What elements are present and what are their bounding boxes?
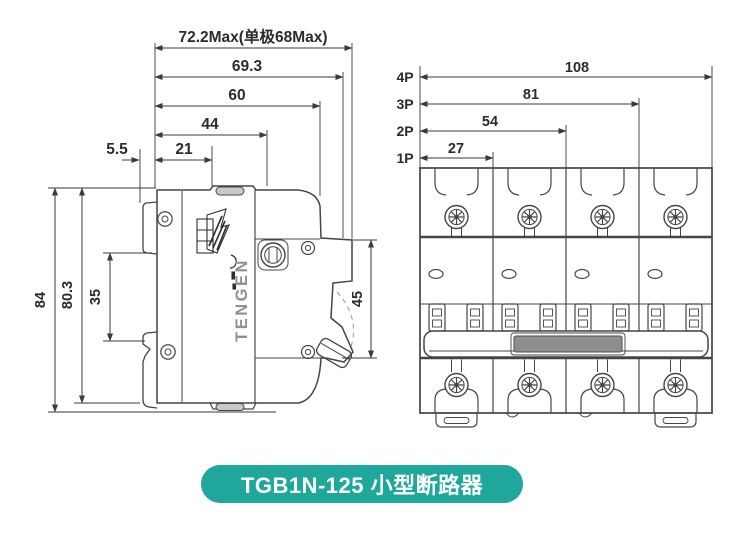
dim-108: 108 <box>565 60 589 76</box>
pole-label-1p: 1P <box>396 150 413 166</box>
certification-mark <box>197 209 236 289</box>
pole-1 <box>420 168 493 413</box>
pole-label-3p: 3P <box>396 96 413 112</box>
mounting-hole-icon <box>158 212 175 359</box>
product-dimension-sheet: TENGEN <box>0 0 750 555</box>
product-caption-badge: TGB1N-125 小型断路器 <box>201 465 523 503</box>
dim-5-5: 5.5 <box>106 141 128 158</box>
dim-45: 45 <box>350 291 366 307</box>
pole-2 <box>493 168 566 413</box>
pole-label-2p: 2P <box>396 123 413 139</box>
din-clip-upper <box>143 202 157 254</box>
dim-54: 54 <box>482 114 498 130</box>
side-view-drawing: TENGEN <box>143 186 354 411</box>
front-view-drawing <box>420 168 712 427</box>
terminal-screw-icon <box>258 240 288 270</box>
dim-80-3: 80.3 <box>60 281 76 309</box>
pole-label-4p: 4P <box>396 69 413 85</box>
dim-21: 21 <box>175 141 193 158</box>
din-clip-lower <box>143 332 157 408</box>
brand-text: TENGEN <box>233 258 251 342</box>
handle-bar <box>424 331 708 357</box>
dim-81: 81 <box>523 87 539 103</box>
mounting-feet <box>436 413 696 427</box>
dim-35: 35 <box>88 289 104 305</box>
pole-3 <box>566 168 639 413</box>
product-caption-label: TGB1N-125 小型断路器 <box>241 468 483 500</box>
dim-27: 27 <box>448 141 464 157</box>
pole-4 <box>639 168 712 413</box>
dim-60: 60 <box>228 87 245 104</box>
dim-69-3: 69.3 <box>232 58 263 75</box>
dim-44: 44 <box>201 116 219 133</box>
dim-overall-width-max: 72.2Max(单极68Max) <box>178 27 327 46</box>
dim-84: 84 <box>33 292 49 308</box>
